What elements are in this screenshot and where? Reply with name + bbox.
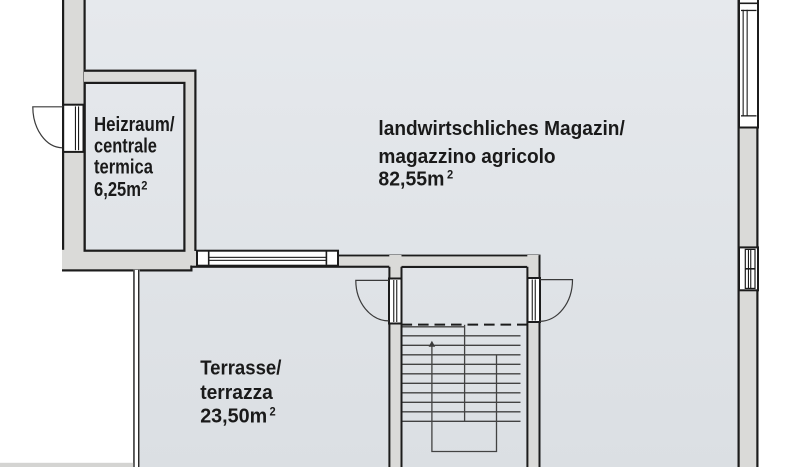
svg-text:6,25m: 6,25m (94, 179, 141, 201)
svg-text:2: 2 (447, 168, 453, 182)
svg-text:82,55m: 82,55m (378, 168, 444, 190)
svg-text:Heizraum/: Heizraum/ (94, 114, 175, 136)
svg-text:2: 2 (141, 178, 147, 192)
svg-text:Terrasse/: Terrasse/ (200, 358, 282, 380)
svg-text:magazzino agricolo: magazzino agricolo (378, 146, 555, 168)
svg-text:23,50m: 23,50m (200, 406, 267, 428)
svg-text:centrale: centrale (94, 135, 157, 157)
svg-text:terrazza: terrazza (200, 382, 274, 404)
svg-text:termica: termica (94, 157, 154, 179)
svg-text:2: 2 (270, 404, 276, 418)
svg-text:landwirtschliches Magazin/: landwirtschliches Magazin/ (378, 118, 625, 140)
